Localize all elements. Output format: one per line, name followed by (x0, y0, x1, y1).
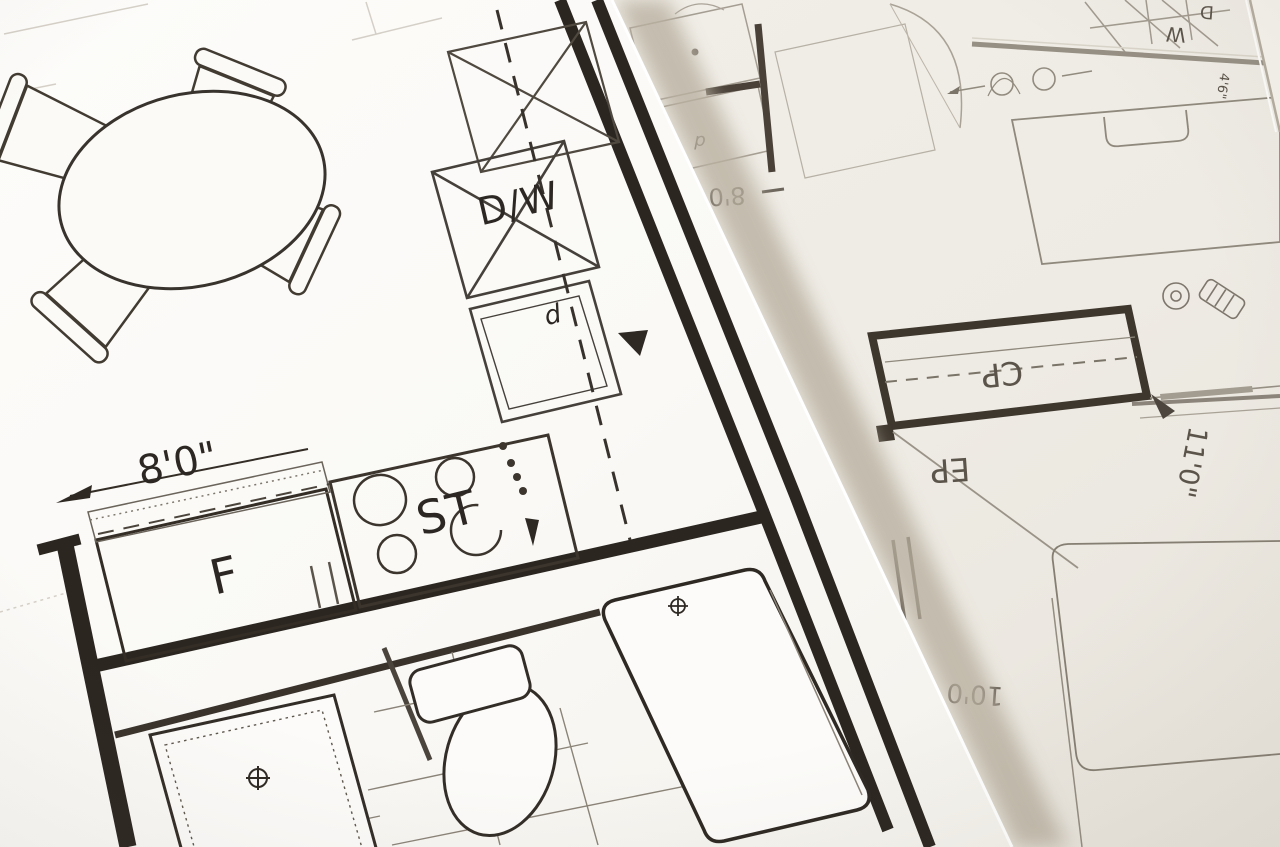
photo-vignette (0, 0, 1280, 847)
blueprint-photo: CP EP 11'0" 10'0 8'0 d W D 4'6" (0, 0, 1280, 847)
floor-plan-scene: CP EP 11'0" 10'0 8'0 d W D 4'6" (0, 0, 1280, 847)
